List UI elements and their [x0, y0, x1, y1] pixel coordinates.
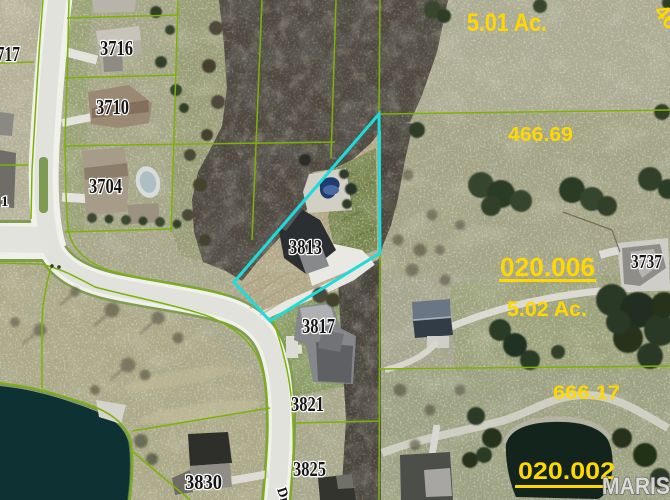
svg-text:666.17: 666.17 [553, 382, 620, 404]
svg-text:3737: 3737 [631, 251, 662, 273]
svg-text:1: 1 [1, 194, 9, 210]
svg-text:3813: 3813 [289, 235, 322, 259]
svg-text:3825: 3825 [293, 457, 326, 481]
svg-text:MARIS: MARIS [602, 473, 670, 500]
svg-text:3821: 3821 [291, 392, 324, 416]
svg-text:3717: 3717 [0, 42, 20, 66]
svg-text:020.002: 020.002 [518, 458, 615, 485]
svg-text:5.02 Ac.: 5.02 Ac. [507, 298, 587, 321]
svg-text:5.01 Ac.: 5.01 Ac. [467, 9, 547, 37]
svg-text:3704: 3704 [89, 174, 122, 198]
svg-text:3817: 3817 [302, 314, 335, 338]
svg-text:3710: 3710 [96, 95, 129, 119]
svg-text:466.69: 466.69 [508, 124, 573, 146]
svg-text:3716: 3716 [100, 36, 133, 60]
svg-text:3830: 3830 [185, 470, 222, 494]
svg-text:020.006: 020.006 [500, 252, 595, 282]
